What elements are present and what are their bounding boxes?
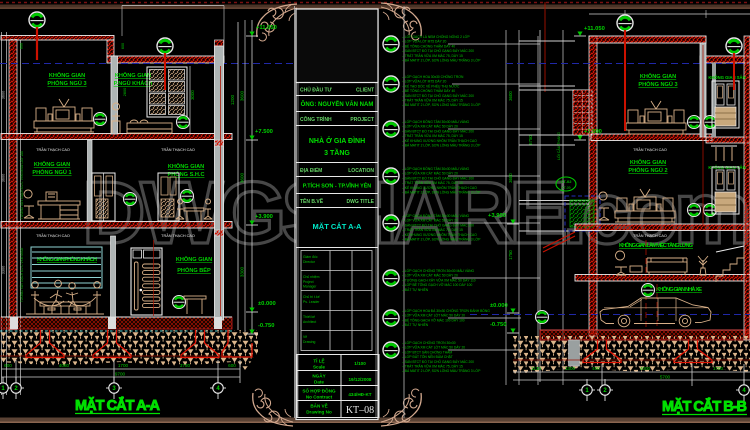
svg-text:3300: 3300 [2, 266, 6, 274]
svg-text:– KẺ TẠO DỐC VỀ PHỄU THU NƯỚC: – KẺ TẠO DỐC VỀ PHỄU THU NƯỚC [402, 83, 460, 88]
svg-text:BẢN VẼ: BẢN VẼ [310, 403, 327, 409]
svg-text:– TRÁT TRẦN VỮA XM MÁC 75, DÀY: – TRÁT TRẦN VỮA XM MÁC 75, DÀY 15 [402, 98, 463, 103]
svg-text:KHÔNG GIAN: KHÔNG GIAN [49, 71, 85, 79]
svg-text:TƯỜNG XÂY GẠCH ĐᯠC VXM M50# DÀ: TƯỜNG XÂY GẠCH ĐᯠC VXM M50# DÀY 220 [19, 151, 24, 219]
svg-text:PHÒNG NGỦ 1: PHÒNG NGỦ 1 [32, 168, 71, 176]
svg-text:Giám đốc: Giám đốc [303, 255, 318, 259]
svg-text:KHÔNG GIAN: KHÔNG GIAN [176, 255, 212, 263]
svg-text:– KẺ KHUNG XƯƠNG NHÔM TRẦN THẠ: – KẺ KHUNG XƯƠNG NHÔM TRẦN THẠCH CAO [402, 138, 477, 143]
svg-text:6750: 6750 [528, 135, 533, 145]
svg-text:5700: 5700 [660, 375, 671, 380]
svg-text:Ps. Leader: Ps. Leader [303, 300, 320, 304]
svg-text:Drawing No: Drawing No [306, 410, 332, 415]
svg-text:– LỚP GẠCH ĐỒNG TÂM 30x30 MÀU: – LỚP GẠCH ĐỒNG TÂM 30x30 MÀU VÀNG [402, 119, 469, 124]
svg-text:Director: Director [303, 260, 316, 264]
svg-text:TỈ LỆ: TỈ LỆ [313, 357, 324, 364]
svg-text:– LỚP VỮA XM CÁT MÁC 50 DÀY 20: – LỚP VỮA XM CÁT MÁC 50 DÀY 20 [402, 218, 458, 223]
svg-text:MẶT CẮT A-A: MẶT CẮT A-A [313, 222, 362, 231]
svg-text:3600: 3600 [508, 91, 513, 101]
svg-text:DWG TITLE: DWG TITLE [347, 199, 375, 205]
svg-text:+11.050: +11.050 [256, 25, 277, 31]
svg-text:400: 400 [592, 366, 600, 371]
svg-text:TRẦN THẠCH CAO: TRẦN THẠCH CAO [36, 234, 70, 238]
svg-text:TRẦN THẠCH CAO: TRẦN THẠCH CAO [36, 148, 70, 152]
svg-text:CLIENT: CLIENT [356, 88, 374, 94]
svg-text:– BẢ MATIT 2 LỚP, SƠN LÒNG MÀU: – BẢ MATIT 2 LỚP, SƠN LÒNG MÀU TRẮNG 3 L… [402, 368, 481, 373]
svg-text:MẶT CẮT A-A: MẶT CẮT A-A [75, 396, 161, 414]
svg-text:– LỚP GẠCH HOA ĐÁ 30x30 CHỐNG: – LỚP GẠCH HOA ĐÁ 30x30 CHỐNG TRƠN ĐÁNH … [402, 308, 490, 313]
svg-text:+3.900: +3.900 [255, 214, 273, 220]
svg-text:– SÀN BTCT ĐỔ TẠI CHỖ GẠNG ĐÁY: – SÀN BTCT ĐỔ TẠI CHỖ GẠNG ĐÁY MÁC 200 [402, 359, 474, 364]
svg-text:TRẦN THẠCH CAO: TRẦN THẠCH CAO [161, 148, 195, 152]
svg-text:SỐ HỢP ĐỒNG: SỐ HỢP ĐỒNG [302, 388, 336, 394]
svg-text:– KẺ KHUNG XƯƠNG NHÔM TRẦN THẠ: – KẺ KHUNG XƯƠNG NHÔM TRẦN THẠCH CAO [402, 185, 477, 190]
svg-text:2800: 2800 [123, 88, 127, 96]
svg-text:KHÔNG GIAN PHÒNG KHÁCH: KHÔNG GIAN PHÒNG KHÁCH [37, 255, 97, 263]
svg-text:– BÊ TÔNG CHỐNG THẤM DÀY 40: – BÊ TÔNG CHỐNG THẤM DÀY 40 [402, 88, 455, 93]
svg-text:-0.750: -0.750 [258, 323, 274, 329]
svg-text:1700: 1700 [713, 366, 724, 371]
svg-text:LỐI CẦU THANG: LỐI CẦU THANG [556, 132, 561, 160]
svg-text:– LỚP VỮA XM CÁT MÁC 50 DÀY 20: – LỚP VỮA XM CÁT MÁC 50 DÀY 20 [402, 273, 458, 278]
svg-text:Drawing: Drawing [303, 340, 316, 344]
svg-text:3600: 3600 [2, 174, 6, 182]
svg-text:– LỚP BÊ TÔNG GẠCH VỠ MÁC 100: – LỚP BÊ TÔNG GẠCH VỠ MÁC 100 DÀY 100 [402, 282, 473, 287]
svg-text:– TRÁT TRẦN VỮA XM MÁC 75, DÀY: – TRÁT TRẦN VỮA XM MÁC 75, DÀY 15 [402, 227, 463, 232]
svg-text:– BẢ MATIT 2 LỚP, SƠN LÒNG MÀU: – BẢ MATIT 2 LỚP, SƠN LÒNG MÀU TRẮNG 3 L… [402, 237, 481, 242]
svg-text:– BẢ MATIT 2 LỚP, SƠN LÒNG MÀU: – BẢ MATIT 2 LỚP, SƠN LÒNG MÀU TRẮNG 3 L… [402, 58, 481, 63]
svg-text:-0.750: -0.750 [490, 322, 506, 328]
svg-text:CHỦ ĐẦU TƯ: CHỦ ĐẦU TƯ [300, 87, 332, 94]
svg-text:434/HĐ-KT: 434/HĐ-KT [348, 392, 371, 397]
svg-text:1/100: 1/100 [354, 361, 366, 366]
svg-text:Vẽ: Vẽ [303, 335, 307, 339]
svg-text:4080: 4080 [59, 363, 70, 368]
svg-text:– LỚP GẠCH LÁ NEM CHỐNG NÓNG 2: – LỚP GẠCH LÁ NEM CHỐNG NÓNG 2 LỚP [402, 34, 471, 39]
svg-text:– SÀN BTCT ĐỔ TẠI CHỖ GẠNG ĐÁY: – SÀN BTCT ĐỔ TẠI CHỖ GẠNG ĐÁY MÁC 200 [402, 222, 474, 227]
svg-text:– SÀN BTCT ĐỔ TẠI CHỖ GẠNG ĐÁY: – SÀN BTCT ĐỔ TẠI CHỖ GẠNG ĐÁY MÁC 200 [402, 128, 474, 133]
svg-text:3600: 3600 [240, 90, 245, 101]
svg-text:3000: 3000 [190, 90, 195, 100]
svg-text:19/12/2008: 19/12/2008 [349, 377, 372, 382]
svg-text:3730: 3730 [180, 363, 191, 368]
svg-text:TRẦN THẠCH CAO: TRẦN THẠCH CAO [633, 234, 667, 238]
svg-text:KHÔNG GIAN: KHÔNG GIAN [115, 71, 151, 79]
svg-text:Chủ trì t.kế: Chủ trì t.kế [303, 295, 320, 299]
svg-text:1700: 1700 [118, 363, 129, 368]
svg-text:– BÊ TÔNG CHỐNG THẤM DÀY 40: – BÊ TÔNG CHỐNG THẤM DÀY 40 [402, 43, 455, 48]
svg-text:P.TÍCH SƠN - TP.VĨNH YÊN: P.TÍCH SƠN - TP.VĨNH YÊN [303, 182, 372, 190]
svg-text:– BẢ MATIT 2 LỚP, SƠN LÒNG MÀU: – BẢ MATIT 2 LỚP, SƠN LÒNG MÀU TRẮNG 3 L… [402, 190, 481, 195]
svg-text:TÊN B.VẼ: TÊN B.VẼ [300, 197, 324, 205]
svg-text:+11.050: +11.050 [584, 26, 605, 32]
svg-text:PHÒNG NGỦ 2: PHÒNG NGỦ 2 [628, 166, 667, 174]
svg-text:9700: 9700 [115, 372, 126, 377]
svg-text:Manager: Manager [303, 285, 317, 289]
svg-text:3300: 3300 [240, 266, 245, 277]
svg-text:TRẦN THẠCH CAO: TRẦN THẠCH CAO [633, 148, 667, 152]
svg-text:PHÒNG BẾP: PHÒNG BẾP [177, 266, 211, 274]
svg-text:– LỚP VỮA LÓT M75 DÀY 20: – LỚP VỮA LÓT M75 DÀY 20 [402, 79, 446, 84]
svg-text:Thiết kế: Thiết kế [303, 315, 315, 319]
svg-text:MẶT CẮT B-B: MẶT CẮT B-B [662, 397, 747, 415]
svg-text:– TƯỜNG GẠCH XÂY VỮA XM MÁC 50: – TƯỜNG GẠCH XÂY VỮA XM MÁC 50 DÀY 110 [402, 277, 476, 282]
svg-text:±0.000: ±0.000 [258, 301, 276, 307]
svg-text:– KẺ KHUNG XƯƠNG NHÔM TRẦN THẠ: – KẺ KHUNG XƯƠNG NHÔM TRẦN THẠCH CAO [402, 232, 477, 237]
svg-text:LOCATION: LOCATION [348, 168, 374, 174]
svg-text:3600: 3600 [2, 91, 6, 99]
svg-text:600: 600 [20, 43, 24, 49]
svg-text:– LỚP ĐẤT TÔN NỀN ĐẦM CHẶT: – LỚP ĐẤT TÔN NỀN ĐẦM CHẶT [402, 354, 453, 359]
svg-text:– LỚP VỮA LÓT M75 DÀY 20: – LỚP VỮA LÓT M75 DÀY 20 [402, 39, 446, 44]
svg-text:– LỚP VỮA XM CÁT MÁC 50 DÀY 20: – LỚP VỮA XM CÁT MÁC 50 DÀY 20 [402, 124, 458, 129]
svg-text:– LỚP VỮA XM CÁT LÓT MÁC 50 DÀ: – LỚP VỮA XM CÁT LÓT MÁC 50 DÀY 20 [402, 345, 465, 350]
svg-text:KHÔNG GIAN LÀM VIỆC TẦNG LỬNG: KHÔNG GIAN LÀM VIỆC TẦNG LỬNG [619, 241, 693, 249]
svg-text:600: 600 [121, 43, 125, 49]
svg-text:– LỚP GẠCH ĐỒNG TÂM 30x30 MÀU: – LỚP GẠCH ĐỒNG TÂM 30x30 MÀU VÀNG [402, 213, 469, 218]
svg-text:1750: 1750 [508, 250, 513, 260]
svg-text:– SÀN BTCT ĐỔ TẠI CHỖ GẠNG ĐÁY: – SÀN BTCT ĐỔ TẠI CHỖ GẠNG ĐÁY MÁC 200 [402, 93, 474, 98]
svg-text:PROJECT: PROJECT [350, 117, 374, 123]
svg-text:– LỚP GẠCH CHỐNG TRƠN 30x30: – LỚP GẠCH CHỐNG TRƠN 30x30 [402, 340, 456, 345]
svg-text:ĐỊA ĐIỂM: ĐỊA ĐIỂM [300, 167, 322, 174]
svg-text:KT-09: KT-09 [561, 186, 570, 190]
svg-text:Architect: Architect [303, 320, 316, 324]
svg-text:TƯỜNG XÂY GẠCH ĐᯠC VXM M50#: TƯỜNG XÂY GẠCH ĐᯠC VXM M50# [19, 248, 24, 303]
svg-text:600: 600 [228, 363, 236, 368]
svg-text:1300: 1300 [565, 366, 576, 371]
svg-text:±0.000: ±0.000 [490, 303, 508, 309]
svg-text:– BẢ MATIT 2 LỚP, SƠN LÒNG MÀU: – BẢ MATIT 2 LỚP, SƠN LÒNG MÀU TRẮNG 3 L… [402, 143, 481, 148]
svg-text:ÔNG: NGUYỄN VĂN NAM: ÔNG: NGUYỄN VĂN NAM [301, 100, 374, 108]
svg-text:– SÀN BTCT ĐỔ TẠI CHỖ GẠNG ĐÁY: – SÀN BTCT ĐỔ TẠI CHỖ GẠNG ĐÁY MÁC 200 [402, 175, 474, 180]
svg-text:KHÔNG GIAN: KHÔNG GIAN [168, 162, 204, 170]
svg-text:TRẦN THẠCH CAO: TRẦN THẠCH CAO [161, 234, 195, 238]
svg-text:4000: 4000 [640, 366, 651, 371]
svg-text:Scale: Scale [313, 365, 325, 370]
svg-text:KHÔNG GIAN: KHÔNG GIAN [34, 160, 70, 168]
svg-text:– LỚP GẠCH HOA 30x30 CHỐNG TRƠ: – LỚP GẠCH HOA 30x30 CHỐNG TRƠN [402, 74, 464, 79]
svg-text:– LỚP VỮA XM CÁT MÁC 50 DÀY 20: – LỚP VỮA XM CÁT MÁC 50 DÀY 20 [402, 171, 458, 176]
svg-text:600: 600 [4, 363, 12, 368]
svg-text:KT–08: KT–08 [346, 405, 374, 416]
svg-text:+7.500: +7.500 [584, 129, 602, 135]
svg-text:– SÀN BTCT ĐỔ TẠI CHỖ GẠNG ĐÁY: – SÀN BTCT ĐỔ TẠI CHỖ GẠNG ĐÁY MÁC 200 [402, 48, 474, 53]
svg-text:No Contract: No Contract [306, 395, 333, 400]
svg-text:KHÔNG GIAN NHÀ XE: KHÔNG GIAN NHÀ XE [656, 285, 702, 293]
svg-text:KHÔNG GIAN: KHÔNG GIAN [640, 72, 676, 80]
svg-text:– TRÁT TRẦN VỮA XM MÁC 75, DÀY: – TRÁT TRẦN VỮA XM MÁC 75, DÀY 15 [402, 133, 463, 138]
svg-text:CT-02: CT-02 [561, 179, 573, 184]
svg-text:KHÔNG GIAN: KHÔNG GIAN [630, 158, 666, 166]
svg-text:– LỚP VỮA XM CÁT LÓT MÁC 50 DÀ: – LỚP VỮA XM CÁT LÓT MÁC 50 DÀY 20 [402, 313, 465, 318]
svg-text:NGÀY: NGÀY [312, 373, 325, 379]
svg-text:– LỚP BTCT SÀN CHỐNG THẤM: – LỚP BTCT SÀN CHỐNG THẤM [402, 349, 452, 354]
svg-text:Chủ nhiệm: Chủ nhiệm [303, 275, 320, 279]
svg-text:+7.500: +7.500 [255, 129, 273, 135]
svg-text:– LỚP GẠCH CHỐNG TRƠN 30x30 MÀ: – LỚP GẠCH CHỐNG TRƠN 30x30 MÀU VÀNG [402, 268, 474, 273]
svg-text:1200: 1200 [230, 94, 235, 105]
svg-text:– BÊ TÔNG GẠCH VỠ MÁC 100 DÀY: – BÊ TÔNG GẠCH VỠ MÁC 100 DÀY 100 [402, 317, 465, 322]
svg-text:– LỚP GẠCH ĐỒNG TÂM 30x30 MÀU: – LỚP GẠCH ĐỒNG TÂM 30x30 MÀU VÀNG [402, 166, 469, 171]
svg-text:+3.900: +3.900 [488, 213, 506, 219]
svg-text:PHÒNG NGỦ 3: PHÒNG NGỦ 3 [638, 80, 677, 88]
svg-text:– TRÁT TRẦN VỮA XM MÁC 75, DÀY: – TRÁT TRẦN VỮA XM MÁC 75, DÀY 15 [402, 53, 463, 58]
svg-text:KHÔNG GIAN SÂN: KHÔNG GIAN SÂN [708, 75, 745, 80]
svg-text:Project: Project [303, 280, 314, 284]
svg-text:– TRÁT TRẦN VỮA XM MÁC 75, DÀY: – TRÁT TRẦN VỮA XM MÁC 75, DÀY 15 [402, 364, 463, 369]
svg-text:PHÒNG NGỦ 3: PHÒNG NGỦ 3 [47, 79, 86, 87]
svg-text:NHÀ Ở GIA ĐÌNH: NHÀ Ở GIA ĐÌNH [309, 136, 365, 145]
svg-text:CÔNG TRÌNH: CÔNG TRÌNH [300, 115, 332, 123]
svg-text:Date: Date [314, 380, 324, 385]
svg-text:3600: 3600 [240, 172, 245, 183]
svg-text:– ĐẤT TỰ NHIÊN: – ĐẤT TỰ NHIÊN [402, 287, 429, 292]
svg-text:– TRÁT TRẦN VỮA XM MÁC 75, DÀY: – TRÁT TRẦN VỮA XM MÁC 75, DÀY 15 [402, 180, 463, 185]
svg-text:1130: 1130 [531, 366, 541, 371]
svg-text:– ĐẤT TỰ NHIÊN: – ĐẤT TỰ NHIÊN [402, 322, 429, 327]
svg-text:3600: 3600 [508, 173, 513, 183]
svg-text:– BẢ MATIT 2 LỚP, SƠN LÒNG MÀU: – BẢ MATIT 2 LỚP, SƠN LÒNG MÀU TRẮNG 3 L… [402, 102, 481, 107]
